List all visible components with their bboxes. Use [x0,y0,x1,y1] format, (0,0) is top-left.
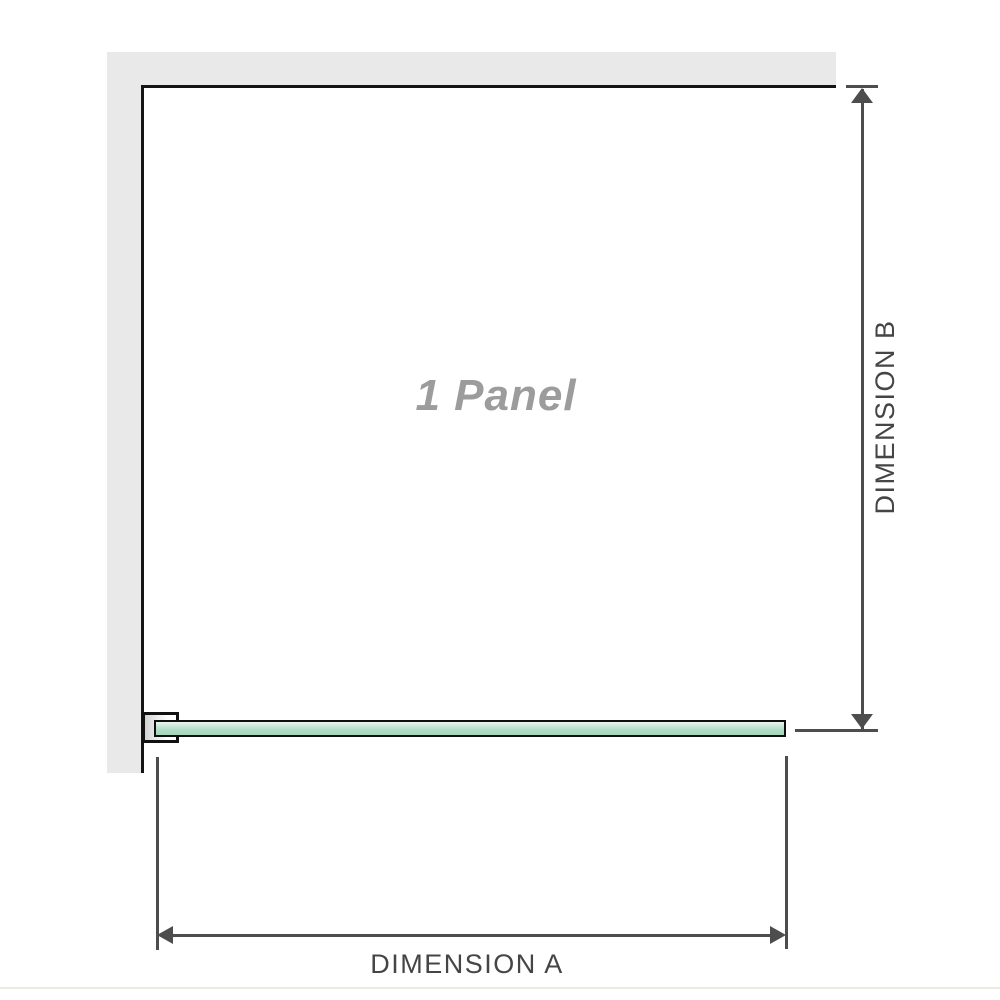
panel-count-label: 1 Panel [346,371,646,421]
dimension-a-extension-left [156,757,159,950]
glass-panel [154,720,786,737]
page-divider-line [0,987,1000,989]
arrowhead-up-icon [851,88,873,103]
arrowhead-right-icon [770,926,786,944]
dimension-b-tick-bottom [795,729,878,732]
dimension-b-label: DIMENSION B [870,267,900,567]
arrowhead-left-icon [157,926,173,944]
wall-inner-edge-top [141,85,836,88]
arrowhead-down-icon [851,714,873,729]
dimension-a-extension-right [785,756,788,949]
shower-panel-diagram: 1 Panel DIMENSION B DIMENSION A [0,0,1000,1000]
dimension-b-line [861,89,864,729]
dimension-a-line [165,934,778,937]
wall-top [107,52,836,85]
dimension-a-label: DIMENSION A [317,949,617,979]
wall-inner-edge-left [141,85,144,773]
wall-left [107,52,141,773]
